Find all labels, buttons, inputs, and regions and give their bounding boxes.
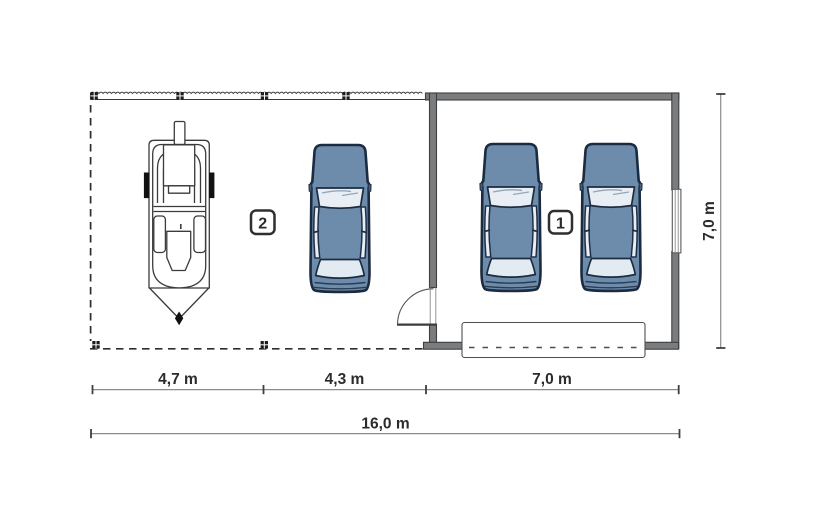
svg-text:7,0 m: 7,0 m: [701, 201, 718, 241]
svg-text:7,0 m: 7,0 m: [532, 371, 572, 388]
svg-text:16,0 m: 16,0 m: [361, 415, 409, 432]
svg-text:4,3 m: 4,3 m: [325, 371, 365, 388]
svg-text:4,7 m: 4,7 m: [158, 371, 198, 388]
svg-text:2: 2: [258, 216, 267, 233]
svg-text:1: 1: [556, 216, 565, 233]
